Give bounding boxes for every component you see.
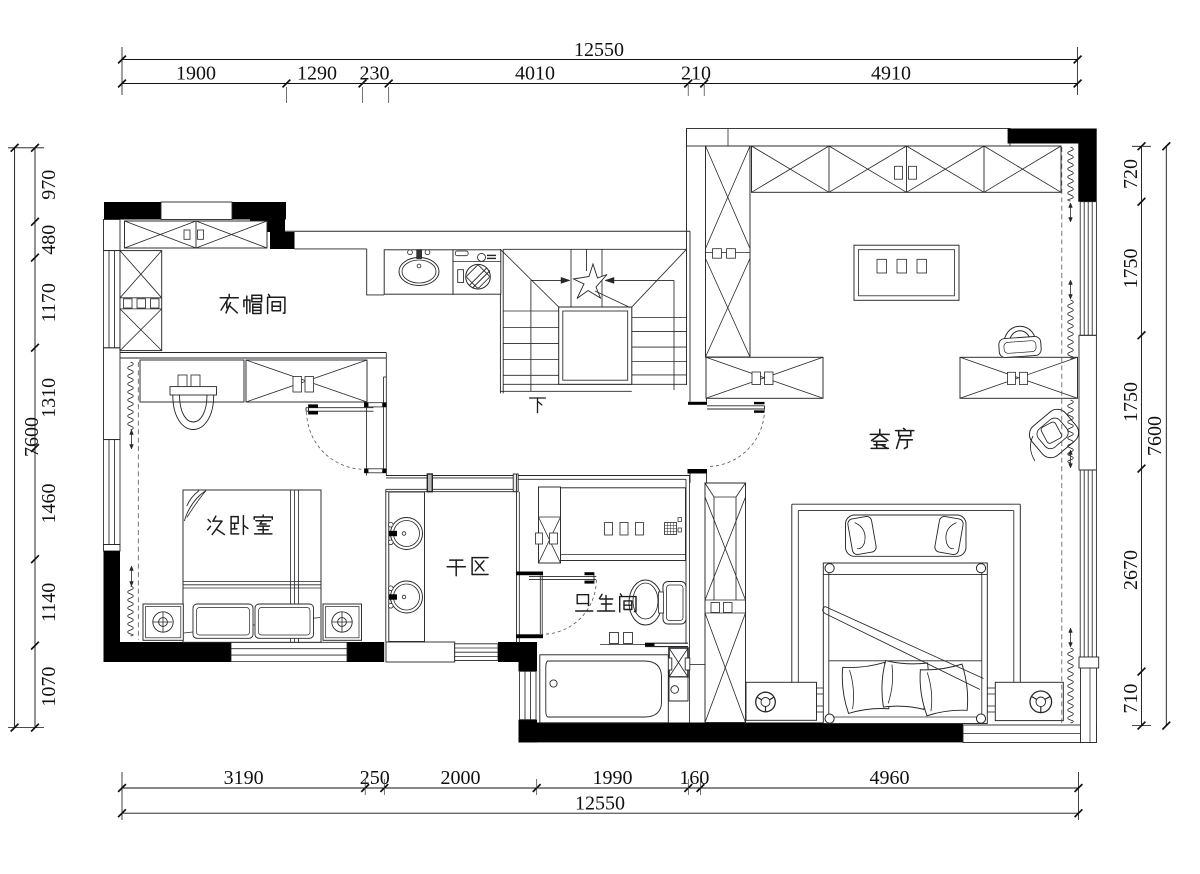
svg-text:1310: 1310 — [38, 378, 60, 418]
svg-text:250: 250 — [360, 767, 390, 789]
svg-text:4960: 4960 — [870, 767, 910, 789]
svg-text:230: 230 — [360, 63, 390, 85]
svg-text:210: 210 — [681, 63, 711, 85]
svg-text:720: 720 — [1120, 159, 1142, 189]
svg-text:1170: 1170 — [38, 283, 60, 322]
svg-text:480: 480 — [38, 225, 60, 255]
svg-text:970: 970 — [38, 170, 60, 200]
svg-text:2000: 2000 — [441, 767, 481, 789]
svg-text:2670: 2670 — [1120, 550, 1142, 590]
svg-text:12550: 12550 — [574, 39, 624, 61]
svg-text:1070: 1070 — [38, 667, 60, 707]
svg-text:1460: 1460 — [38, 484, 60, 524]
svg-text:1140: 1140 — [38, 583, 60, 622]
svg-text:1750: 1750 — [1120, 249, 1142, 289]
svg-text:3190: 3190 — [224, 767, 264, 789]
svg-text:4010: 4010 — [515, 63, 555, 85]
svg-text:710: 710 — [1120, 684, 1142, 714]
svg-text:1900: 1900 — [176, 63, 216, 85]
svg-text:7600: 7600 — [1144, 416, 1166, 456]
svg-text:12550: 12550 — [575, 793, 625, 815]
svg-text:1990: 1990 — [593, 767, 633, 789]
svg-text:1750: 1750 — [1120, 382, 1142, 422]
svg-text:160: 160 — [679, 767, 709, 789]
svg-text:4910: 4910 — [871, 63, 911, 85]
svg-text:1290: 1290 — [297, 63, 337, 85]
